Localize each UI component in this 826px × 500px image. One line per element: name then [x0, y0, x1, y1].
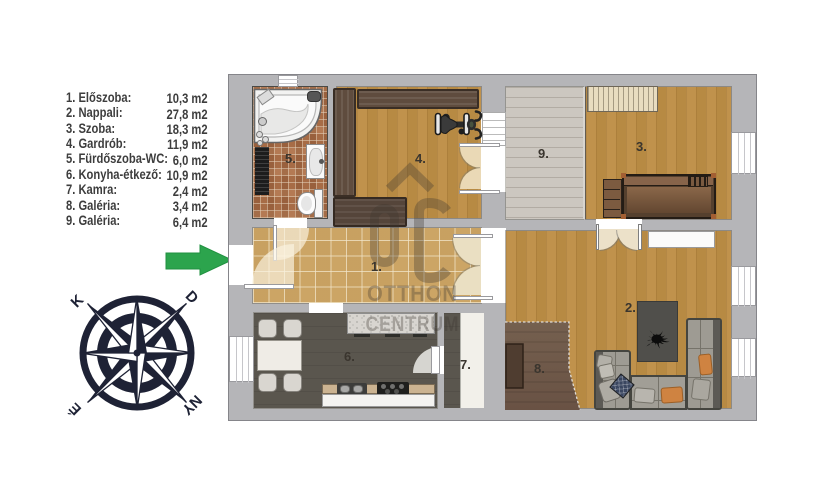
svg-text:CENTRUM: CENTRUM — [366, 312, 460, 336]
svg-text:K: K — [68, 291, 88, 311]
svg-text:É: É — [66, 399, 85, 418]
svg-text:OTTHON: OTTHON — [367, 282, 458, 306]
svg-text:NY: NY — [178, 391, 205, 418]
